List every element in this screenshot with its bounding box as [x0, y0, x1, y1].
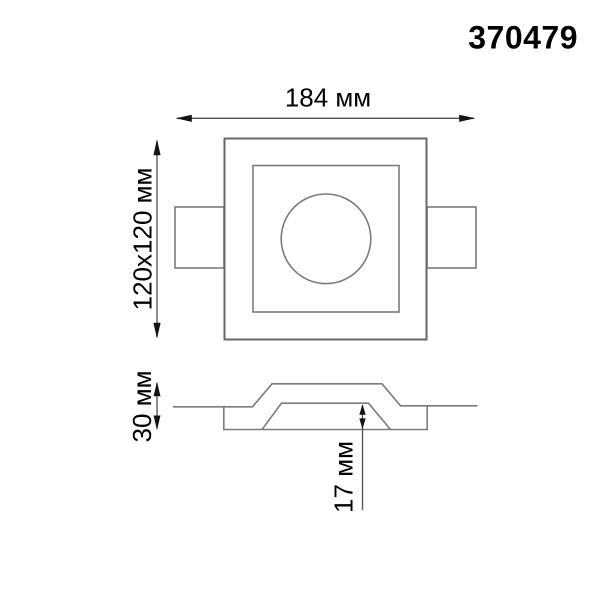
section-body-box — [224, 406, 427, 430]
dimension-body-depth: 30 мм — [127, 371, 161, 443]
section-inner-recess — [262, 403, 391, 429]
top-view-right-tab — [427, 207, 476, 268]
top-view-outer-square — [225, 139, 427, 340]
dimension-recess-depth: 17 мм — [329, 404, 366, 513]
section-view — [173, 384, 478, 430]
technical-drawing-svg: 370479 184 мм — [0, 0, 600, 600]
arrow-up-icon — [359, 404, 365, 415]
dim-17-label: 17 мм — [329, 441, 359, 513]
arrow-up-icon — [153, 139, 160, 155]
top-view — [175, 139, 476, 340]
drawing-canvas: 370479 184 мм — [0, 0, 600, 600]
arrow-down-icon — [359, 418, 365, 429]
dimension-overall-width: 184 мм — [176, 83, 475, 122]
product-number: 370479 — [468, 20, 578, 56]
dim-30-label: 30 мм — [127, 371, 157, 443]
arrow-down-icon — [153, 323, 160, 339]
dimension-face-size: 120x120 мм — [128, 139, 161, 338]
top-view-left-tab — [175, 207, 224, 268]
dim-120x120-label: 120x120 мм — [128, 168, 158, 311]
dim-184-label: 184 мм — [285, 83, 371, 113]
arrow-left-icon — [176, 115, 192, 122]
arrow-right-icon — [459, 115, 475, 122]
